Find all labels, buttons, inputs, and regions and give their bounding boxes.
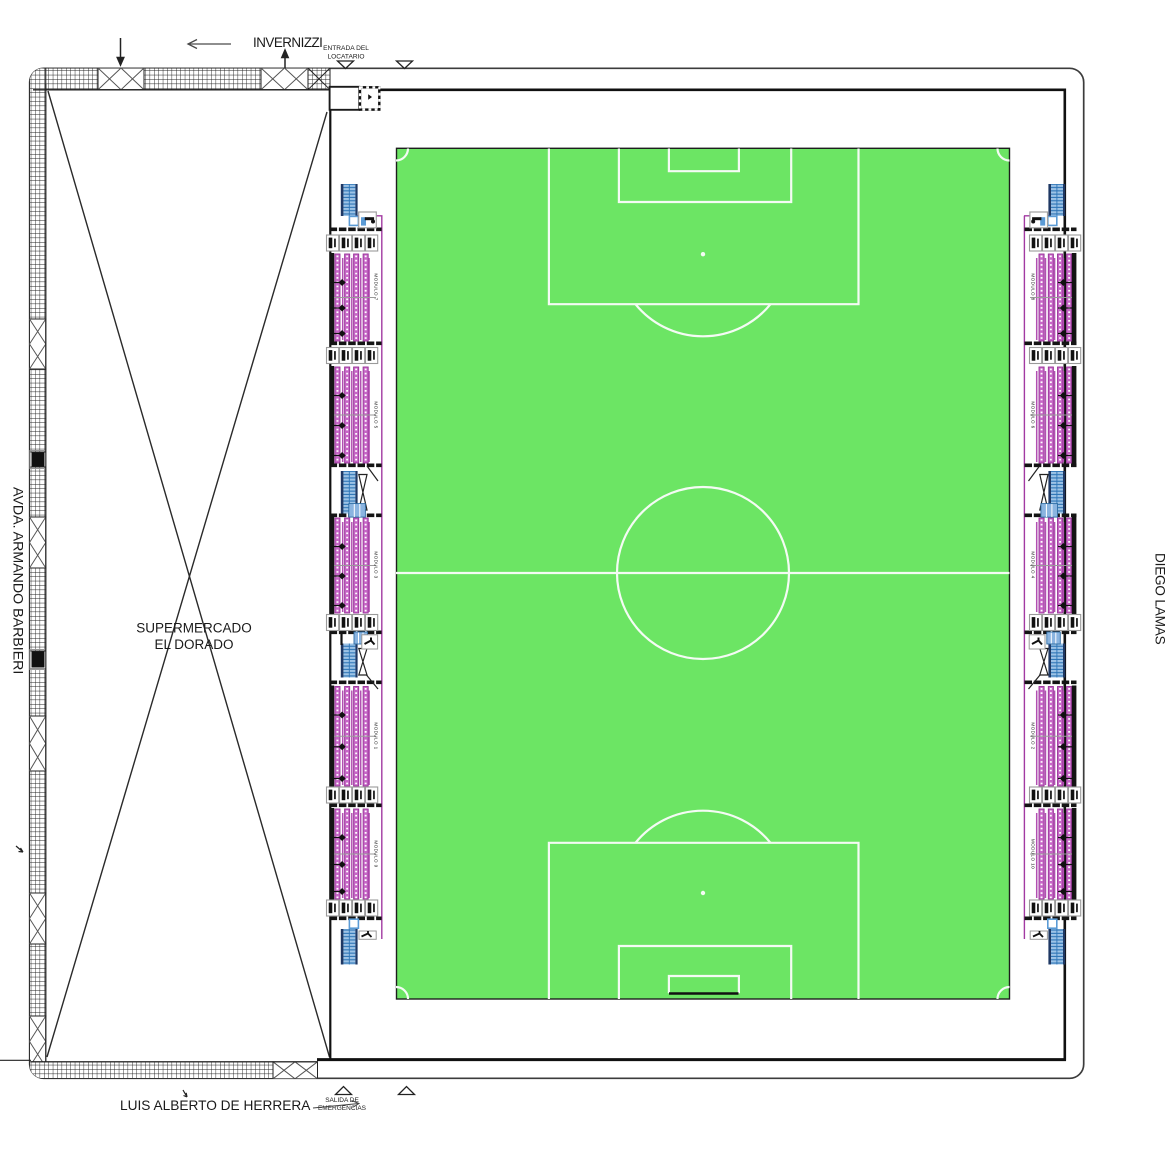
svg-text:SUPERMERCADO: SUPERMERCADO [136, 621, 252, 636]
svg-text:MODULO 5: MODULO 5 [374, 401, 379, 428]
svg-text:MODULO 9: MODULO 9 [374, 840, 379, 867]
svg-text:MODULO 8: MODULO 8 [1030, 273, 1035, 300]
svg-text:MODULO 3: MODULO 3 [374, 551, 379, 578]
svg-text:LUIS ALBERTO DE HERRERA: LUIS ALBERTO DE HERRERA [120, 1098, 311, 1113]
svg-text:MODULO 4: MODULO 4 [1030, 551, 1035, 578]
svg-text:SALIDA DE: SALIDA DE [325, 1097, 359, 1104]
svg-text:DIEGO LAMAS: DIEGO LAMAS [1153, 553, 1168, 645]
svg-text:AVDA. ARMANDO BARBIERI: AVDA. ARMANDO BARBIERI [10, 487, 26, 674]
svg-text:MODULO 1: MODULO 1 [374, 722, 379, 749]
svg-text:INVERNIZZI: INVERNIZZI [253, 35, 322, 50]
svg-text:ENTRADA DEL: ENTRADA DEL [323, 45, 369, 52]
svg-text:MODULO 6: MODULO 6 [1030, 401, 1035, 428]
svg-text:LOCATARIO: LOCATARIO [327, 54, 364, 61]
svg-text:EL DORADO: EL DORADO [154, 637, 233, 652]
svg-text:MODULO 10: MODULO 10 [1030, 839, 1035, 869]
svg-text:MODULO 7: MODULO 7 [374, 273, 379, 300]
svg-text:EMERGENCIAS: EMERGENCIAS [318, 1105, 367, 1112]
svg-text:MODULO 2: MODULO 2 [1030, 722, 1035, 749]
